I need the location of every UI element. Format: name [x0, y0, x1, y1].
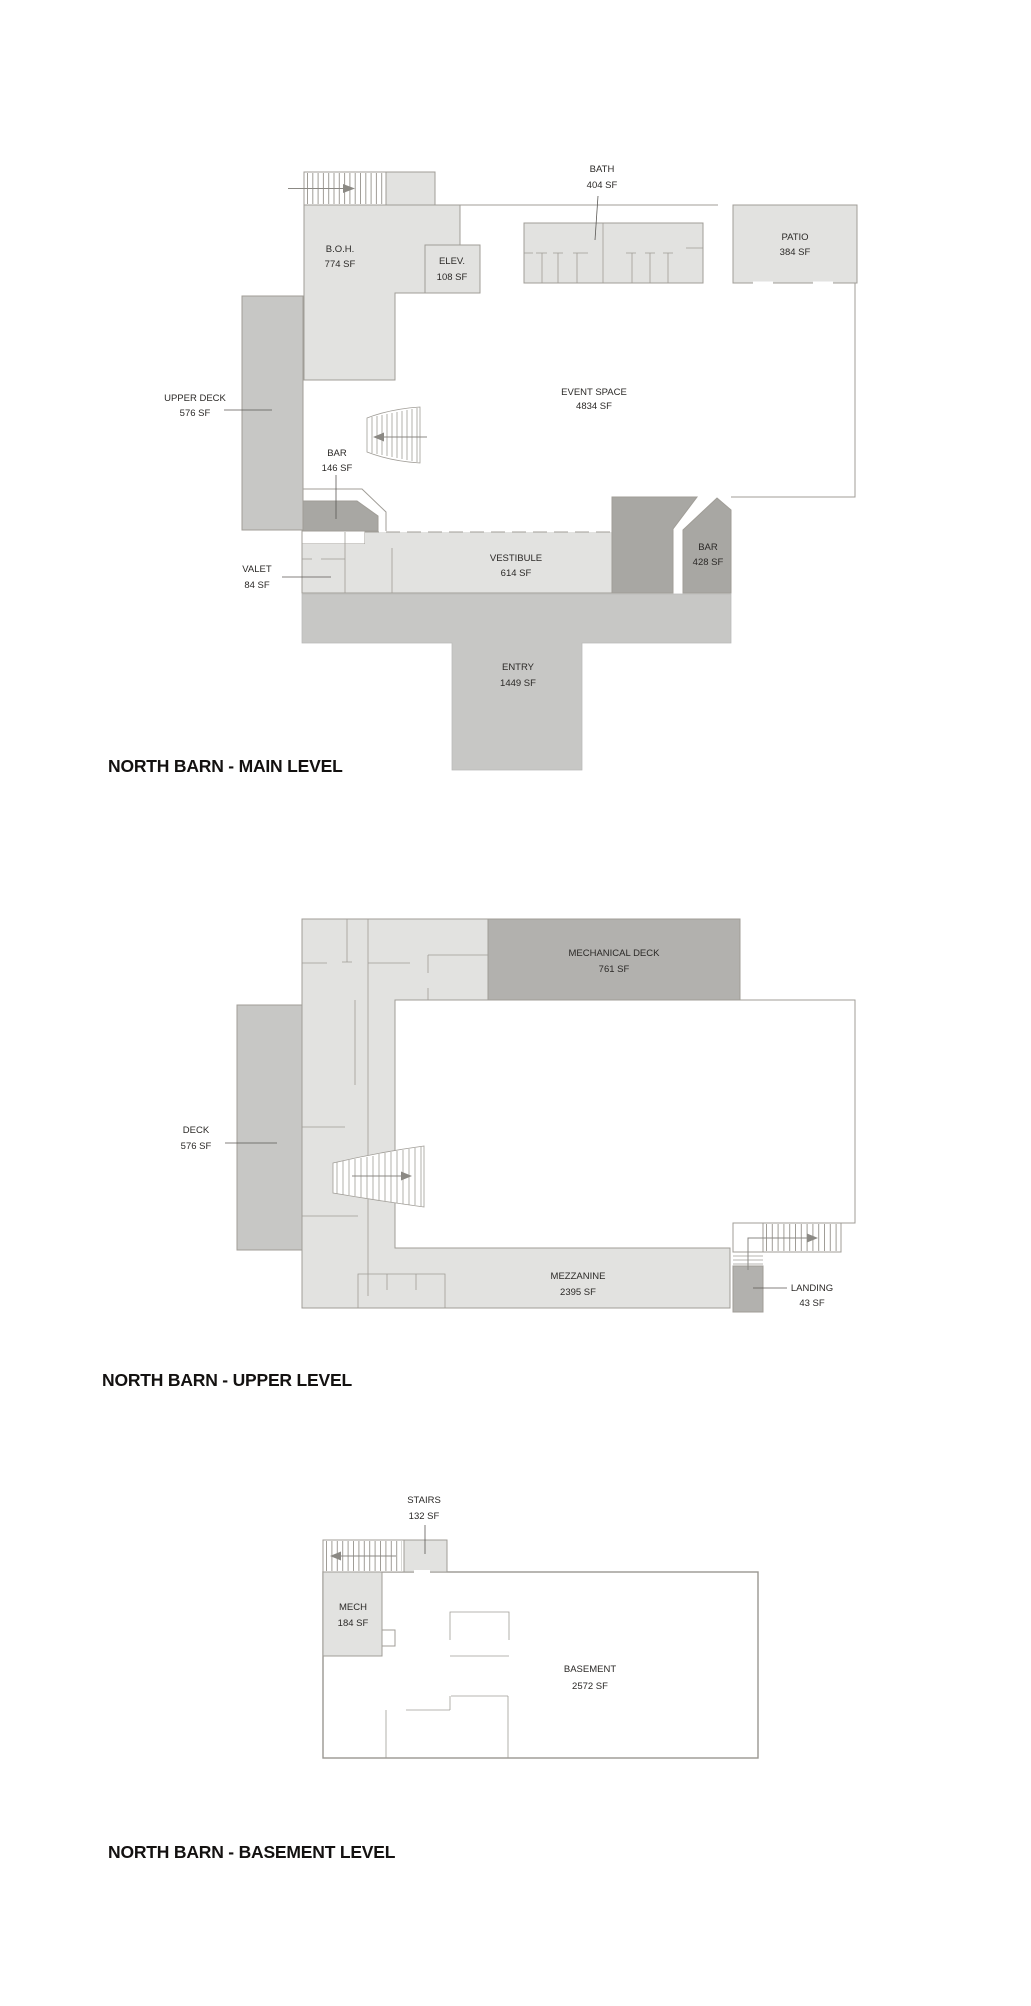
room-area-valet: 84 SF — [244, 580, 270, 591]
room-area-entry: 1449 SF — [500, 678, 536, 689]
room-area-upper-deck: 576 SF — [180, 408, 211, 419]
room-label-entry: ENTRY — [502, 662, 535, 673]
stair-landing-main — [386, 172, 435, 205]
room-area-mezzanine: 2395 SF — [560, 1287, 596, 1298]
room-label-basement: BASEMENT — [564, 1664, 616, 1675]
room-elev — [425, 245, 480, 293]
mech-notch — [382, 1630, 395, 1646]
room-area-bath: 404 SF — [587, 180, 618, 191]
room-area-event-space: 4834 SF — [576, 401, 612, 412]
room-upper-deck — [242, 296, 303, 530]
room-area-landing: 43 SF — [799, 1298, 825, 1309]
room-label-event-space: EVENT SPACE — [561, 387, 627, 398]
plan-title-basement-level: NORTH BARN - BASEMENT LEVEL — [108, 1842, 396, 1862]
room-deck — [237, 1005, 302, 1250]
void-boundary — [740, 1000, 855, 1223]
room-label-bar-small: BAR — [327, 448, 347, 459]
room-bath — [524, 223, 703, 283]
room-label-upper-deck: UPPER DECK — [164, 393, 226, 404]
room-label-patio: PATIO — [781, 232, 808, 243]
room-stairs — [404, 1540, 447, 1572]
room-label-bar-large: BAR — [698, 542, 718, 553]
floor-plan-canvas: BATH 404 SF B.O.H. 774 SF ELEV. 108 SF P… — [0, 0, 1031, 2006]
room-area-elev: 108 SF — [437, 272, 468, 283]
basement-level-plan: STAIRS 132 SF MECH 184 SF BASEMENT 2572 … — [108, 1495, 758, 1862]
room-label-deck: DECK — [183, 1125, 210, 1136]
room-bar-small — [303, 501, 378, 531]
room-mechanical-deck — [488, 919, 740, 1000]
room-label-stairs: STAIRS — [407, 1495, 441, 1506]
room-landing — [733, 1266, 763, 1312]
plan-title-main-level: NORTH BARN - MAIN LEVEL — [108, 756, 343, 776]
room-area-boh: 774 SF — [325, 259, 356, 270]
room-label-valet: VALET — [242, 564, 272, 575]
room-area-bar-small: 146 SF — [322, 463, 353, 474]
room-label-mech: MECH — [339, 1602, 367, 1613]
room-basement — [323, 1572, 758, 1758]
room-label-boh: B.O.H. — [326, 244, 355, 255]
room-label-mezzanine: MEZZANINE — [551, 1271, 606, 1282]
room-area-vestibule: 614 SF — [501, 568, 532, 579]
room-label-vestibule: VESTIBULE — [490, 553, 542, 564]
room-area-deck: 576 SF — [181, 1141, 212, 1152]
main-level-plan: BATH 404 SF B.O.H. 774 SF ELEV. 108 SF P… — [108, 164, 857, 776]
room-label-mechanical-deck: MECHANICAL DECK — [569, 948, 661, 959]
room-label-landing: LANDING — [791, 1283, 833, 1294]
room-area-bar-large: 428 SF — [693, 557, 724, 568]
room-label-elev: ELEV. — [439, 256, 465, 267]
floor-plan-sheet: BATH 404 SF B.O.H. 774 SF ELEV. 108 SF P… — [0, 0, 1031, 2006]
room-mech — [323, 1572, 382, 1656]
upper-level-plan: MECHANICAL DECK 761 SF DECK 576 SF MEZZA… — [102, 919, 855, 1390]
plan-title-upper-level: NORTH BARN - UPPER LEVEL — [102, 1370, 352, 1390]
room-area-stairs: 132 SF — [409, 1511, 440, 1522]
bar-small-counter-gap — [302, 531, 365, 544]
room-area-mechanical-deck: 761 SF — [599, 964, 630, 975]
room-area-basement: 2572 SF — [572, 1681, 608, 1692]
room-area-patio: 384 SF — [780, 247, 811, 258]
room-patio — [733, 205, 857, 283]
room-area-mech: 184 SF — [338, 1618, 369, 1629]
room-label-bath: BATH — [590, 164, 615, 175]
event-east-south-wall — [731, 283, 855, 497]
